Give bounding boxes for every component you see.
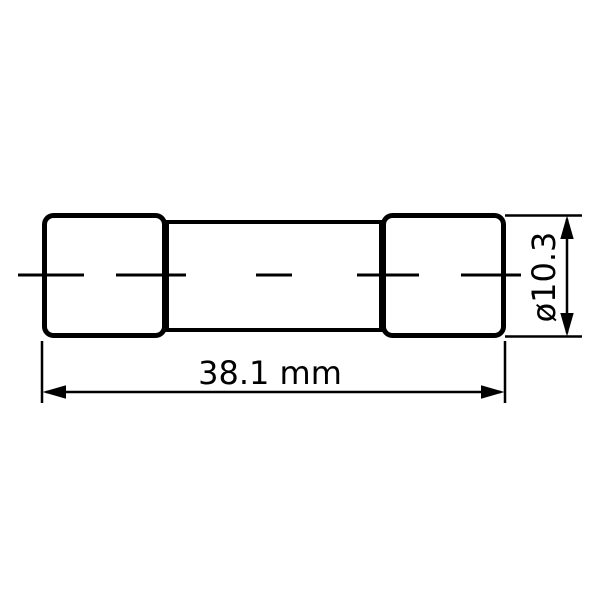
length-dimension-label: 38.1 mm <box>198 354 342 392</box>
fuse-dimension-drawing: 38.1 mm ø10.3 <box>0 0 600 600</box>
drawing-canvas: 38.1 mm ø10.3 <box>0 0 600 600</box>
diameter-dimension-label: ø10.3 <box>525 232 563 323</box>
